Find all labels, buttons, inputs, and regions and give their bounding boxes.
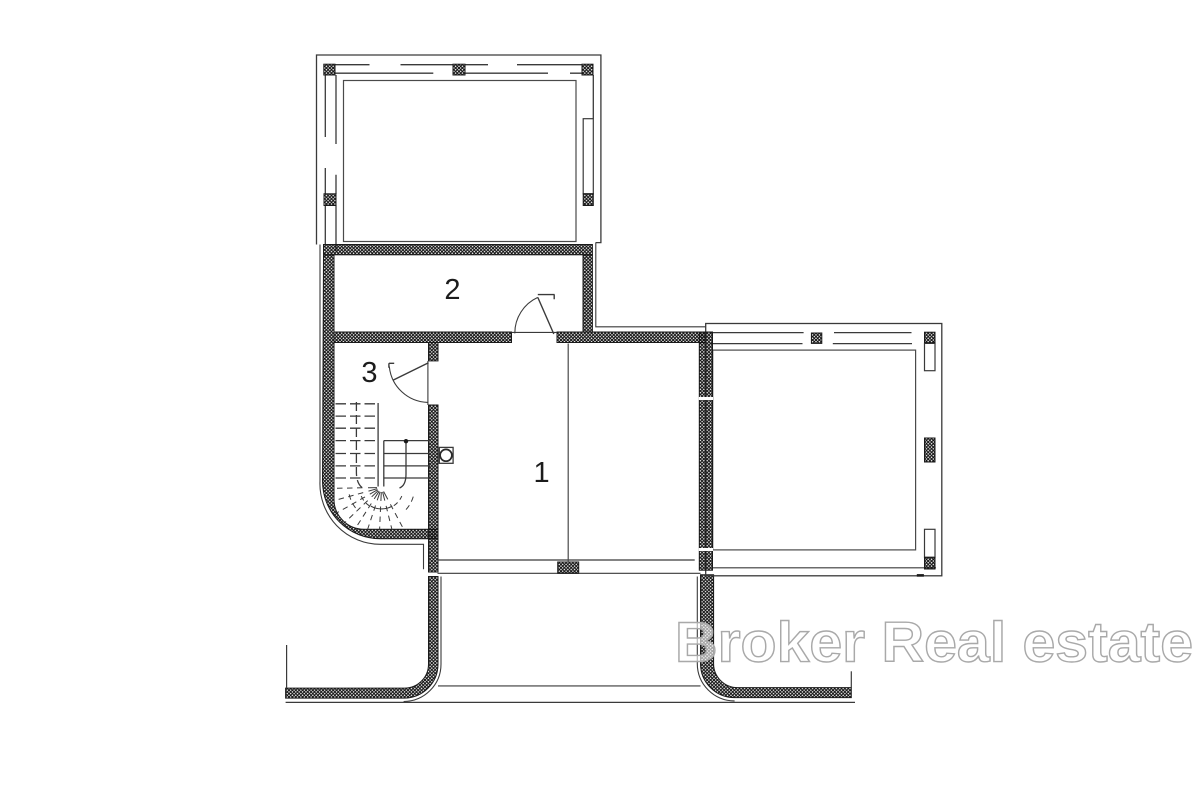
svg-text:2: 2 bbox=[444, 274, 460, 306]
svg-text:1: 1 bbox=[534, 457, 550, 489]
svg-text:Broker Real estate: Broker Real estate bbox=[675, 611, 1193, 675]
svg-text:3: 3 bbox=[361, 357, 377, 389]
